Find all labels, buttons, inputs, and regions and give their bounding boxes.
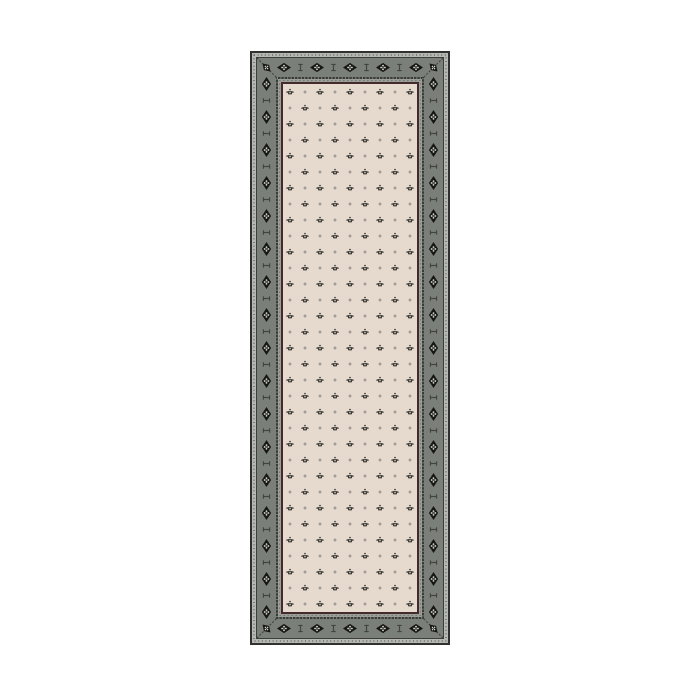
rug-field-pattern bbox=[283, 84, 417, 612]
runner-rug bbox=[250, 51, 450, 645]
rug-graphic bbox=[250, 51, 450, 645]
product-photo-canvas bbox=[0, 0, 700, 700]
